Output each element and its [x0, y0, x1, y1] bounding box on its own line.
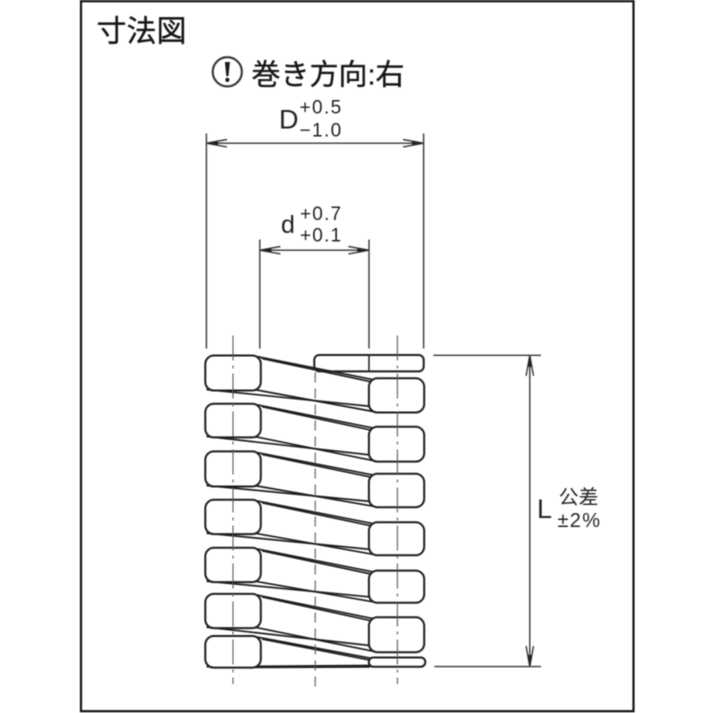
svg-text:公差: 公差 [559, 487, 599, 509]
svg-text:D: D [279, 105, 299, 135]
svg-text:寸法図: 寸法図 [97, 16, 187, 49]
svg-text:巻き方向:右: 巻き方向:右 [252, 59, 405, 92]
svg-text:+0.1: +0.1 [300, 226, 342, 247]
svg-text:L: L [537, 494, 552, 524]
svg-text:−1.0: −1.0 [300, 121, 343, 142]
svg-text:+0.5: +0.5 [300, 98, 343, 119]
svg-text:+0.7: +0.7 [300, 204, 342, 225]
svg-text:d: d [281, 211, 295, 239]
svg-text:±2%: ±2% [558, 510, 602, 532]
